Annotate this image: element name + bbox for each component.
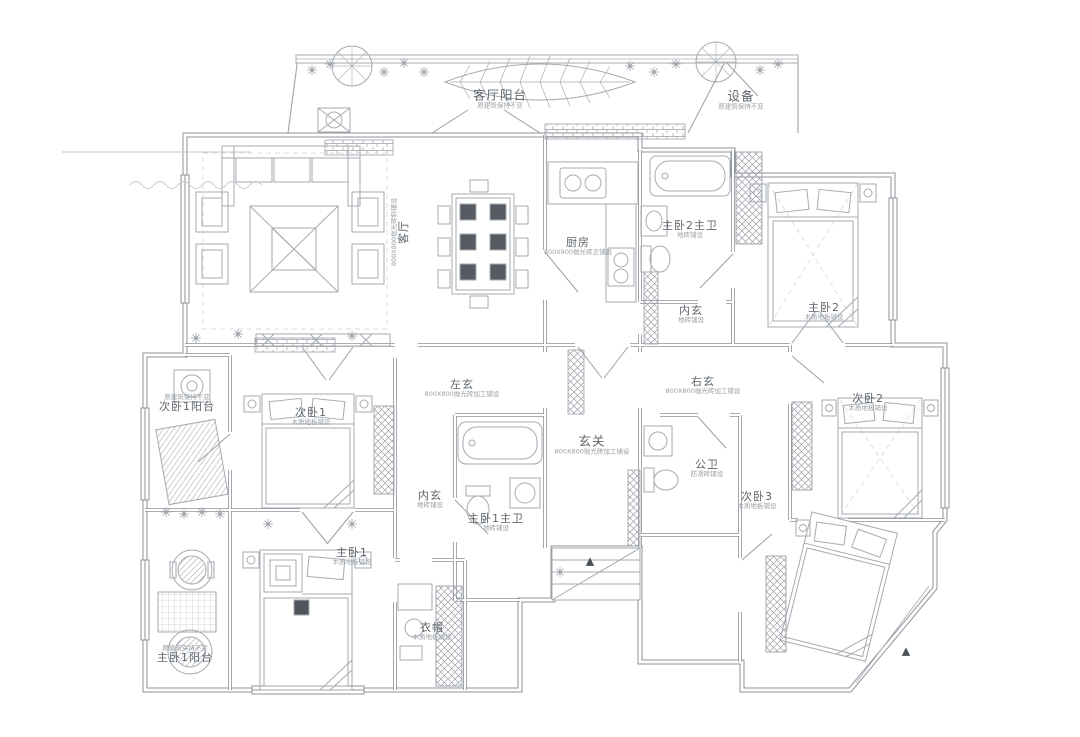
room-label-cloak: 衣帽 木质地板铺设 [413,622,452,642]
room-label-master1-bath: 主卧1主卫 地砖铺设 [468,513,524,533]
floor-plan-page: 客厅阳台 原建筑保持不变 设备 原建筑保持不变 800X800抛光砖斜铺设 客厅… [0,0,1080,737]
walls [145,55,945,690]
entrance-steps [552,548,640,600]
room-label-entry: 玄关 800X800抛光砖加工铺设 [555,434,630,455]
room-label-public-bath: 公卫 防滑砖铺设 [691,459,724,479]
room-label-bedroom3: 次卧3 木质地板铺设 [738,491,777,511]
room-label-master2: 主卧2 木质地板铺设 [805,302,844,322]
room-label-kitchen: 厨房 800X800抛光砖正铺设 [544,237,612,257]
entry-marker-icon: ▲ [586,555,594,568]
room-label-bedroom2: 次卧2 木质地板铺设 [849,393,888,413]
room-label-master1-balcony: 原建筑保持不变 主卧1阳台 [157,645,213,665]
tree-icon [332,46,372,86]
room-label-right-hall: 右玄 800X800抛光砖加工铺设 [666,376,741,396]
room-label-bedroom1: 次卧1 木质地板铺设 [292,407,331,427]
wardrobe-master2 [736,152,762,244]
balcony-rug [156,419,228,504]
secondary-entry-marker-icon: ▲ [902,645,910,658]
room-label-living: 800X800抛光砖斜铺设 客厅 [391,198,411,266]
window [141,408,149,500]
room-label-inner-hall-top: 内玄 地砖铺设 [678,305,704,325]
floor-plan-canvas [0,0,1080,737]
room-label-master1: 主卧1 木质地板铺设 [333,547,372,567]
tree-icon [696,42,736,82]
grid-rug [158,592,216,632]
balcony-fixture [318,108,350,132]
room-label-inner-hall-bottom: 内玄 地砖铺设 [417,490,443,510]
window [941,368,949,508]
wardrobe-bedroom3 [766,556,786,652]
wardrobe-bedroom1 [374,406,394,494]
room-label-equipment: 设备 原建筑保持不变 [718,89,764,110]
window [141,560,149,640]
room-label-bedroom1-balcony: 原建筑保持不变 次卧1阳台 [159,394,215,414]
room-label-master2-bath: 主卧2主卫 地砖铺设 [662,220,718,240]
window [181,175,189,303]
window [889,198,897,320]
room-label-left-hall: 左玄 800X800抛光砖加工铺设 [425,379,500,399]
wardrobe-bedroom2 [792,402,812,490]
room-label-living-balcony: 客厅阳台 原建筑保持不变 [473,88,527,109]
